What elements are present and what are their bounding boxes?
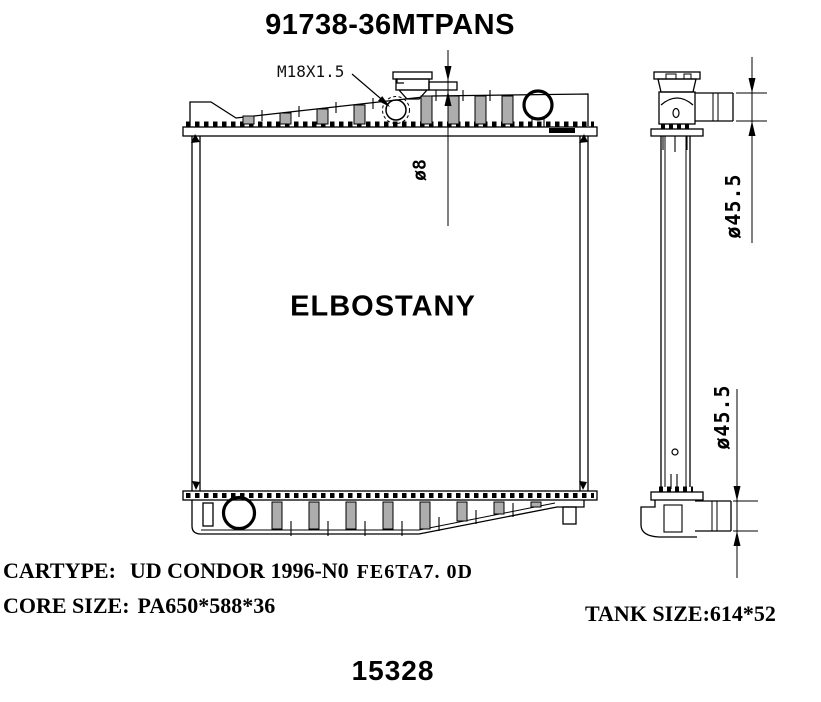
radiator-technical-drawing: 91738-36MTPANS M18X1.5 ø8 ELBOSTANY ø45.… [0,0,821,702]
outlet-pipe-diameter-label: ø45.5 [710,384,734,449]
cartype-value: UD CONDOR 1996-N0 [130,558,349,583]
core-size-value: PA650*588*36 [138,593,276,618]
cartype-label: CARTYPE: [3,558,116,583]
core-size-line: CORE SIZE:PA650*588*36 [3,593,275,619]
side-view [641,72,733,537]
dimension-annotations [733,57,767,578]
cartype-line: CARTYPE:UD CONDOR 1996-N0FE6TA7. 0D [3,558,473,584]
core-size-label: CORE SIZE: [3,593,130,618]
tank-size-label: TANK SIZE: [585,601,710,626]
brand-watermark: ELBOSTANY [290,291,476,324]
drawing-title: 91738-36MTPANS [265,9,515,42]
inlet-pipe-diameter-label: ø45.5 [721,173,745,238]
part-code: 15328 [352,655,435,687]
side-view-inlet-pipe [695,93,733,121]
front-view-top-tank [183,50,597,226]
tank-size-line: TANK SIZE:614*52 [585,601,776,627]
tank-size-value: 614*52 [710,601,776,626]
overflow-pipe-diameter-label: ø8 [410,159,431,181]
thread-size-label: M18X1.5 [277,62,344,81]
front-view-bottom-tank [183,491,597,536]
bottom-pipe-opening [224,498,255,529]
cartype-engine-value: FE6TA7. 0D [357,561,473,583]
overflow-dimension [445,50,452,226]
side-view-outlet-pipe [695,501,731,531]
